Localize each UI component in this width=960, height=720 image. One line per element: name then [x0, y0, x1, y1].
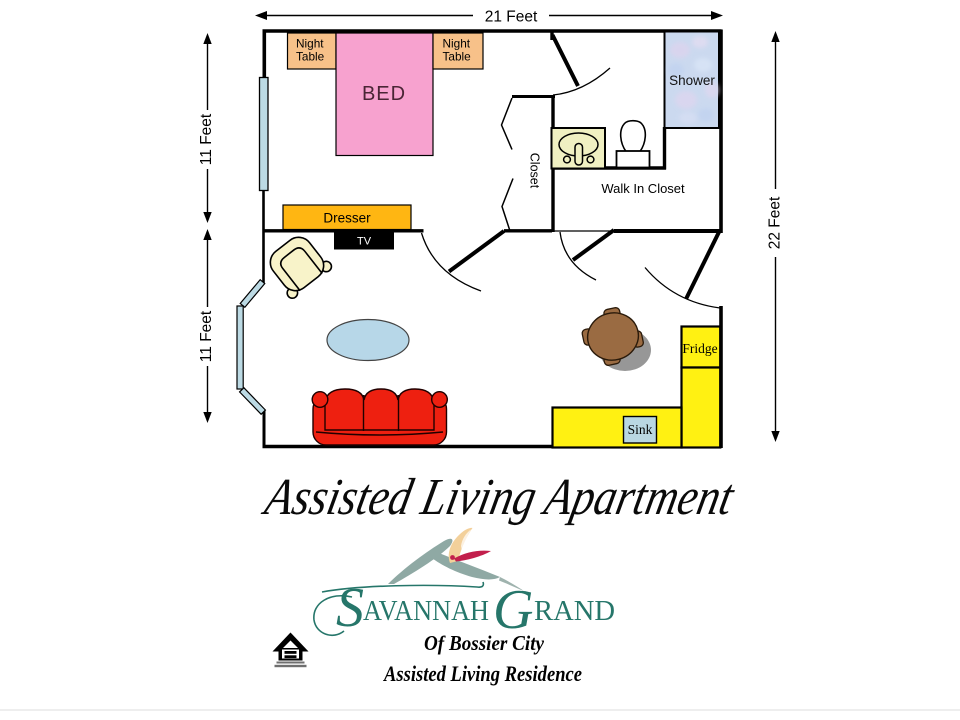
svg-text:RAND: RAND	[534, 595, 615, 627]
svg-text:Sink: Sink	[628, 422, 653, 437]
svg-text:Shower: Shower	[669, 73, 715, 88]
svg-text:Assisted Living Apartment: Assisted Living Apartment	[258, 469, 740, 526]
svg-text:Night: Night	[443, 37, 471, 51]
svg-text:Night: Night	[296, 37, 324, 51]
svg-text:22 Feet: 22 Feet	[767, 196, 784, 249]
svg-text:AVANNAH: AVANNAH	[363, 595, 489, 627]
svg-text:Table: Table	[296, 50, 325, 64]
svg-text:Fridge: Fridge	[682, 341, 717, 356]
svg-text:Dresser: Dresser	[323, 211, 371, 226]
svg-text:Assisted Living Residence: Assisted Living Residence	[382, 661, 582, 686]
svg-text:21 Feet: 21 Feet	[485, 9, 538, 26]
svg-text:Walk In Closet: Walk In Closet	[601, 181, 685, 196]
svg-text:BED: BED	[362, 83, 406, 105]
svg-text:Of Bossier City: Of Bossier City	[424, 631, 545, 655]
svg-text:S: S	[336, 577, 364, 639]
svg-text:11 Feet: 11 Feet	[198, 310, 215, 362]
svg-text:Closet: Closet	[528, 153, 542, 189]
svg-text:11 Feet: 11 Feet	[198, 113, 215, 165]
svg-text:TV: TV	[357, 236, 372, 248]
svg-text:Table: Table	[443, 50, 472, 64]
